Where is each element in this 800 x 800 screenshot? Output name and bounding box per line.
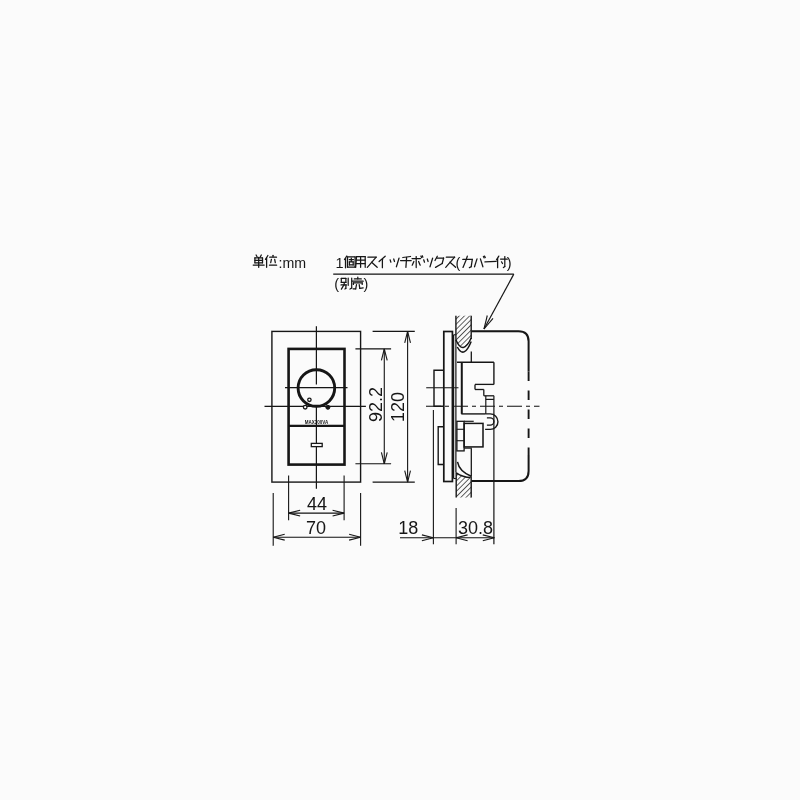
svg-text:(: ( (334, 276, 339, 292)
svg-text:92.2: 92.2 (366, 387, 386, 422)
svg-text:1: 1 (336, 255, 344, 271)
svg-text:30.8: 30.8 (458, 518, 493, 538)
svg-text:44: 44 (307, 494, 327, 514)
svg-text:120: 120 (388, 392, 408, 422)
svg-text:): ) (364, 276, 369, 292)
svg-text:70: 70 (306, 518, 326, 538)
svg-text:MAX300VA: MAX300VA (305, 419, 329, 425)
svg-text:): ) (507, 255, 512, 271)
svg-text::mm: :mm (279, 255, 307, 271)
svg-text:(: ( (456, 255, 461, 271)
svg-text:18: 18 (398, 518, 418, 538)
